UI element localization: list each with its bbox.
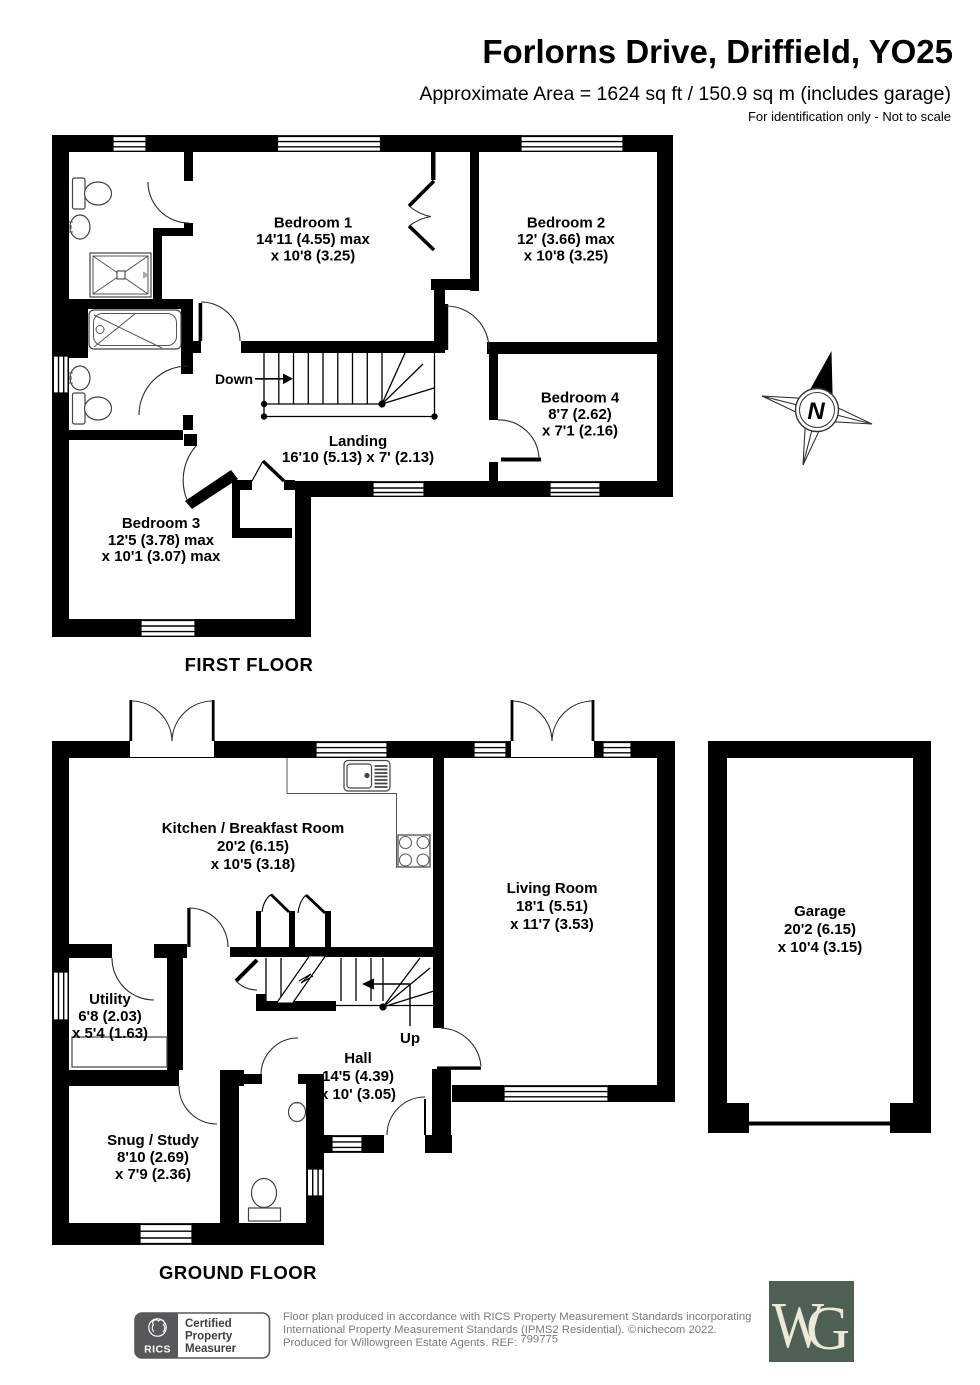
- svg-text:x 10'1 (3.07) max: x 10'1 (3.07) max: [102, 548, 221, 565]
- svg-text:x 7'9 (2.36): x 7'9 (2.36): [115, 1166, 191, 1183]
- svg-text:Measurer: Measurer: [185, 1343, 237, 1355]
- svg-text:Hall: Hall: [344, 1050, 372, 1067]
- svg-text:N: N: [807, 398, 825, 425]
- svg-text:RICS: RICS: [144, 1344, 171, 1356]
- svg-text:x 7'1 (2.16): x 7'1 (2.16): [542, 423, 618, 440]
- svg-text:Kitchen / Breakfast Room: Kitchen / Breakfast Room: [162, 820, 345, 837]
- svg-text:Down: Down: [215, 371, 253, 387]
- svg-text:16'10 (5.13) x 7' (2.13): 16'10 (5.13) x 7' (2.13): [282, 449, 434, 466]
- svg-text:x 10'8 (3.25): x 10'8 (3.25): [524, 248, 608, 265]
- svg-text:12'5 (3.78) max: 12'5 (3.78) max: [108, 532, 215, 549]
- svg-text:GROUND FLOOR: GROUND FLOOR: [159, 1262, 317, 1283]
- svg-text:x 10' (3.05): x 10' (3.05): [320, 1086, 396, 1103]
- svg-text:x 10'4 (3.15): x 10'4 (3.15): [778, 939, 862, 956]
- svg-text:Forlorns Drive, Driffield, YO2: Forlorns Drive, Driffield, YO25: [482, 33, 953, 70]
- svg-text:Property: Property: [185, 1331, 233, 1343]
- svg-text:x 5'4 (1.63): x 5'4 (1.63): [72, 1025, 148, 1042]
- svg-text:Bedroom 4: Bedroom 4: [541, 390, 620, 407]
- svg-text:Approximate Area = 1624 sq ft: Approximate Area = 1624 sq ft / 150.9 sq…: [419, 83, 951, 105]
- svg-text:Bedroom 1: Bedroom 1: [274, 215, 352, 232]
- svg-text:12' (3.66) max: 12' (3.66) max: [517, 231, 615, 248]
- svg-text:For identification only - Not: For identification only - Not to scale: [748, 109, 951, 124]
- svg-text:8'7 (2.62): 8'7 (2.62): [548, 406, 612, 423]
- svg-text:Utility: Utility: [89, 991, 131, 1008]
- svg-text:Landing: Landing: [329, 433, 387, 450]
- svg-text:14'5 (4.39): 14'5 (4.39): [322, 1068, 394, 1085]
- svg-text:Bedroom 3: Bedroom 3: [122, 515, 200, 532]
- svg-text:20'2 (6.15): 20'2 (6.15): [784, 921, 856, 938]
- svg-text:Bedroom 2: Bedroom 2: [527, 215, 605, 232]
- svg-text:20'2 (6.15): 20'2 (6.15): [217, 838, 289, 855]
- svg-text:Garage: Garage: [794, 903, 846, 920]
- svg-text:x 11'7 (3.53): x 11'7 (3.53): [510, 916, 594, 933]
- svg-text:14'11 (4.55) max: 14'11 (4.55) max: [256, 231, 370, 248]
- svg-text:x 10'5 (3.18): x 10'5 (3.18): [211, 856, 295, 873]
- svg-text:8'10 (2.69): 8'10 (2.69): [117, 1149, 189, 1166]
- svg-text:Certified: Certified: [185, 1318, 232, 1330]
- svg-text:Snug / Study: Snug / Study: [107, 1132, 199, 1149]
- svg-text:FIRST FLOOR: FIRST FLOOR: [185, 654, 314, 675]
- svg-text:International Property Measure: International Property Measurement Stand…: [283, 1324, 717, 1336]
- svg-text:G: G: [806, 1295, 850, 1363]
- svg-text:Living Room: Living Room: [507, 880, 598, 897]
- svg-text:x 10'8 (3.25): x 10'8 (3.25): [271, 248, 355, 265]
- svg-text:Up: Up: [400, 1030, 420, 1047]
- svg-text:6'8 (2.03): 6'8 (2.03): [78, 1008, 142, 1025]
- svg-text:18'1 (5.51): 18'1 (5.51): [516, 898, 588, 915]
- svg-text:Floor plan produced in accorda: Floor plan produced in accordance with R…: [283, 1311, 751, 1323]
